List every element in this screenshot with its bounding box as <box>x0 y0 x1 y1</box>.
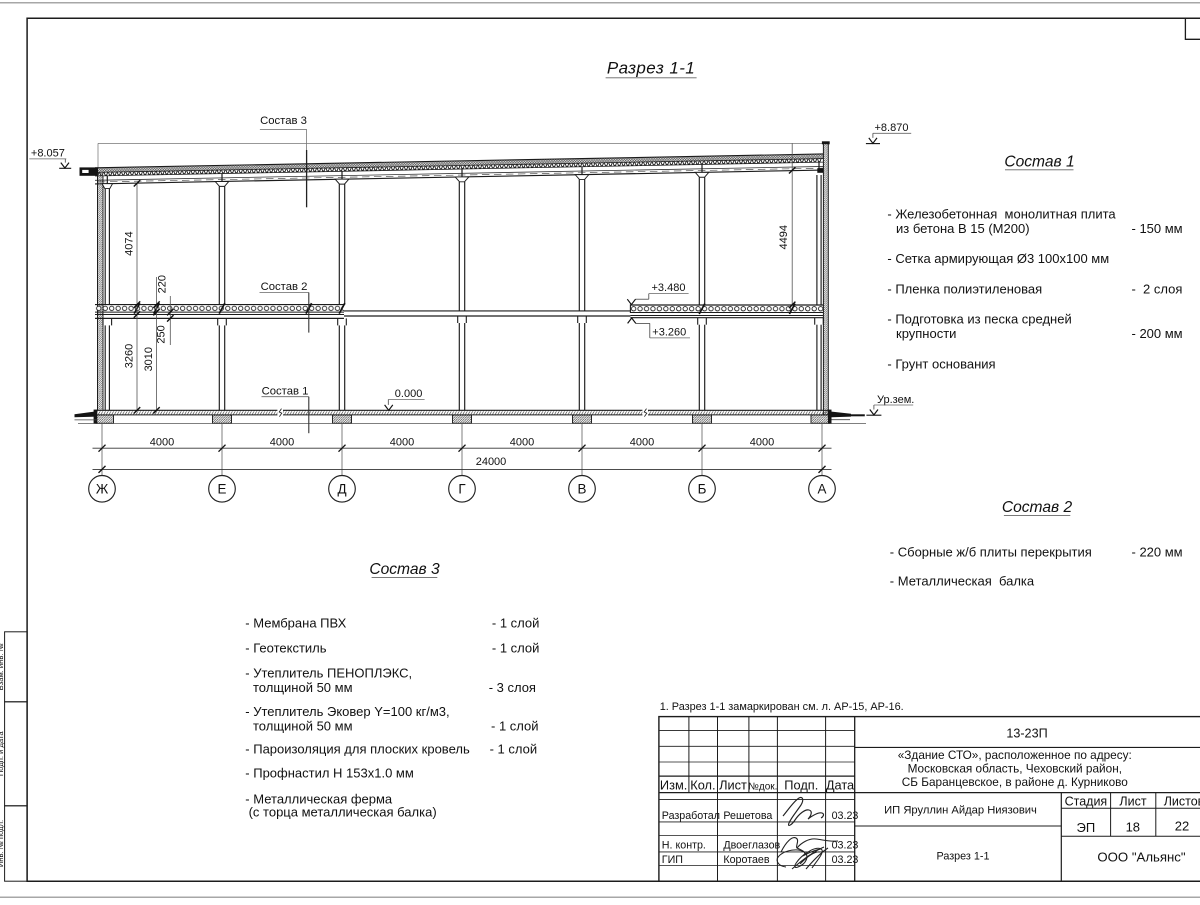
svg-text:- 3 слоя: - 3 слоя <box>489 680 536 695</box>
svg-text:250: 250 <box>155 325 167 343</box>
svg-text:4000: 4000 <box>150 436 174 448</box>
svg-text:Подп.: Подп. <box>784 777 818 792</box>
svg-text:Решетова: Решетова <box>723 810 772 822</box>
svg-text:Ж: Ж <box>96 482 109 497</box>
svg-text:Состав 2: Состав 2 <box>1002 499 1073 516</box>
svg-text:- 2 слоя: - 2 слоя <box>1132 281 1183 296</box>
svg-text:- Грунт основания: - Грунт основания <box>887 356 995 371</box>
svg-text:Состав 1: Состав 1 <box>1004 153 1074 170</box>
svg-text:Б: Б <box>698 482 707 497</box>
svg-text:- 150 мм: - 150 мм <box>1132 221 1183 236</box>
svg-text:Листов: Листов <box>1164 794 1200 808</box>
svg-text:СБ Баранцевское, в районе д. К: СБ Баранцевское, в районе д. Курниково <box>902 775 1129 789</box>
svg-text:22: 22 <box>1175 819 1189 834</box>
svg-text:3010: 3010 <box>143 347 155 371</box>
svg-text:4000: 4000 <box>390 436 414 448</box>
svg-text:- Железобетонная монолитная п: - Железобетонная монолитная плита <box>887 206 1116 221</box>
svg-text:3260: 3260 <box>123 344 135 368</box>
svg-text:Состав 1: Состав 1 <box>262 385 309 397</box>
svg-text:Разрез 1-1: Разрез 1-1 <box>607 59 695 78</box>
svg-text:Состав 3: Состав 3 <box>260 115 307 127</box>
svg-text:4000: 4000 <box>630 436 654 448</box>
svg-text:Разработал: Разработал <box>662 810 720 822</box>
svg-text:- Профнастил Н 153х1.0 мм: - Профнастил Н 153х1.0 мм <box>245 766 414 781</box>
svg-text:- Металлическая балка: - Металлическая балка <box>890 574 1035 589</box>
svg-text:Изм.: Изм. <box>660 777 687 792</box>
svg-text:из бетона В 15 (М200): из бетона В 15 (М200) <box>896 221 1030 236</box>
svg-text:крупности: крупности <box>896 326 956 341</box>
svg-text:Д: Д <box>337 482 346 497</box>
svg-text:- 1 слой: - 1 слой <box>490 742 538 757</box>
svg-text:- Утеплитель Эковер Y=100 кг/м: - Утеплитель Эковер Y=100 кг/м3, <box>245 704 449 719</box>
svg-text:- 200 мм: - 200 мм <box>1132 326 1183 341</box>
svg-text:ГИП: ГИП <box>662 854 683 866</box>
svg-text:Стадия: Стадия <box>1065 794 1108 808</box>
svg-text:Лист: Лист <box>719 777 747 792</box>
svg-text:- 220 мм: - 220 мм <box>1132 544 1183 559</box>
svg-text:- Сетка армирующая Ø3 100х100: - Сетка армирующая Ø3 100х100 мм <box>887 251 1109 266</box>
svg-text:Взам. инв. №: Взам. инв. № <box>0 643 5 690</box>
svg-text:18: 18 <box>1126 819 1140 834</box>
svg-text:толщиной 50 мм: толщиной 50 мм <box>253 680 353 695</box>
svg-text:- Сборные ж/б плиты перекрытия: - Сборные ж/б плиты перекрытия <box>890 544 1092 559</box>
svg-text:03.23: 03.23 <box>832 854 859 866</box>
svg-text:- Подготовка из песка средней: - Подготовка из песка средней <box>887 312 1071 327</box>
svg-text:Московская область, Чеховский: Московская область, Чеховский район, <box>908 761 1122 775</box>
svg-text:Коротаев: Коротаев <box>723 854 769 866</box>
svg-text:03.23: 03.23 <box>832 810 859 822</box>
svg-text:+8.870: +8.870 <box>875 122 909 134</box>
svg-text:Инв. № подл.: Инв. № подл. <box>0 820 5 867</box>
svg-text:ООО "Альянс": ООО "Альянс" <box>1097 849 1185 864</box>
svg-text:А: А <box>818 482 827 497</box>
svg-text:- Геотекстиль: - Геотекстиль <box>245 640 326 655</box>
svg-text:Состав 3: Состав 3 <box>369 561 440 578</box>
svg-text:- Пароизоляция для плоских кро: - Пароизоляция для плоских кровель <box>245 742 470 757</box>
svg-text:+3.480: +3.480 <box>652 282 686 294</box>
svg-text:ИП Яруллин Айдар Ниязович: ИП Яруллин Айдар Ниязович <box>884 804 1037 816</box>
svg-text:24000: 24000 <box>476 456 507 468</box>
svg-text:(с торца металлическая балка): (с торца металлическая балка) <box>249 805 437 820</box>
svg-text:- 1 слой: - 1 слой <box>492 640 540 655</box>
svg-text:- 1 слой: - 1 слой <box>491 719 539 734</box>
svg-text:- Утеплитель ПЕНОПЛЭКС,: - Утеплитель ПЕНОПЛЭКС, <box>245 666 412 681</box>
svg-text:В: В <box>578 482 587 497</box>
svg-text:Подп. и дата: Подп. и дата <box>0 731 5 777</box>
svg-text:4494: 4494 <box>778 225 790 249</box>
svg-text:4000: 4000 <box>750 436 774 448</box>
svg-text:Состав 2: Состав 2 <box>261 281 308 293</box>
svg-text:Ур.зем.: Ур.зем. <box>877 394 914 406</box>
svg-text:4074: 4074 <box>123 231 135 255</box>
svg-text:13-23П: 13-23П <box>1006 726 1047 740</box>
svg-text:Кол.: Кол. <box>690 777 715 792</box>
svg-text:220: 220 <box>156 275 168 293</box>
svg-text:1. Разрез 1-1 замаркирован см.: 1. Разрез 1-1 замаркирован см. л. АР-15,… <box>660 701 904 713</box>
svg-text:- Мембрана ПВХ: - Мембрана ПВХ <box>245 615 346 630</box>
svg-text:Двоеглазов: Двоеглазов <box>723 839 780 851</box>
svg-text:«Здание СТО», расположенное по: «Здание СТО», расположенное по адресу: <box>898 748 1132 762</box>
svg-text:Г: Г <box>458 482 465 497</box>
svg-text:Лист: Лист <box>1119 794 1146 808</box>
svg-text:№док.: №док. <box>748 781 777 792</box>
svg-text:+8.057: +8.057 <box>31 147 65 159</box>
svg-text:- 1 слой: - 1 слой <box>492 615 540 630</box>
svg-text:толщиной 50 мм: толщиной 50 мм <box>253 719 353 734</box>
svg-text:4000: 4000 <box>510 436 534 448</box>
svg-text:4000: 4000 <box>270 436 294 448</box>
svg-text:Е: Е <box>218 482 227 497</box>
svg-text:0.000: 0.000 <box>395 388 423 400</box>
svg-text:Разрез 1-1: Разрез 1-1 <box>936 851 989 863</box>
svg-text:Н. контр.: Н. контр. <box>662 839 706 851</box>
svg-text:+3.260: +3.260 <box>652 327 686 339</box>
svg-text:ЭП: ЭП <box>1077 820 1096 835</box>
svg-text:Дата: Дата <box>826 777 855 792</box>
svg-text:- Пленка полиэтиленовая: - Пленка полиэтиленовая <box>887 281 1042 296</box>
